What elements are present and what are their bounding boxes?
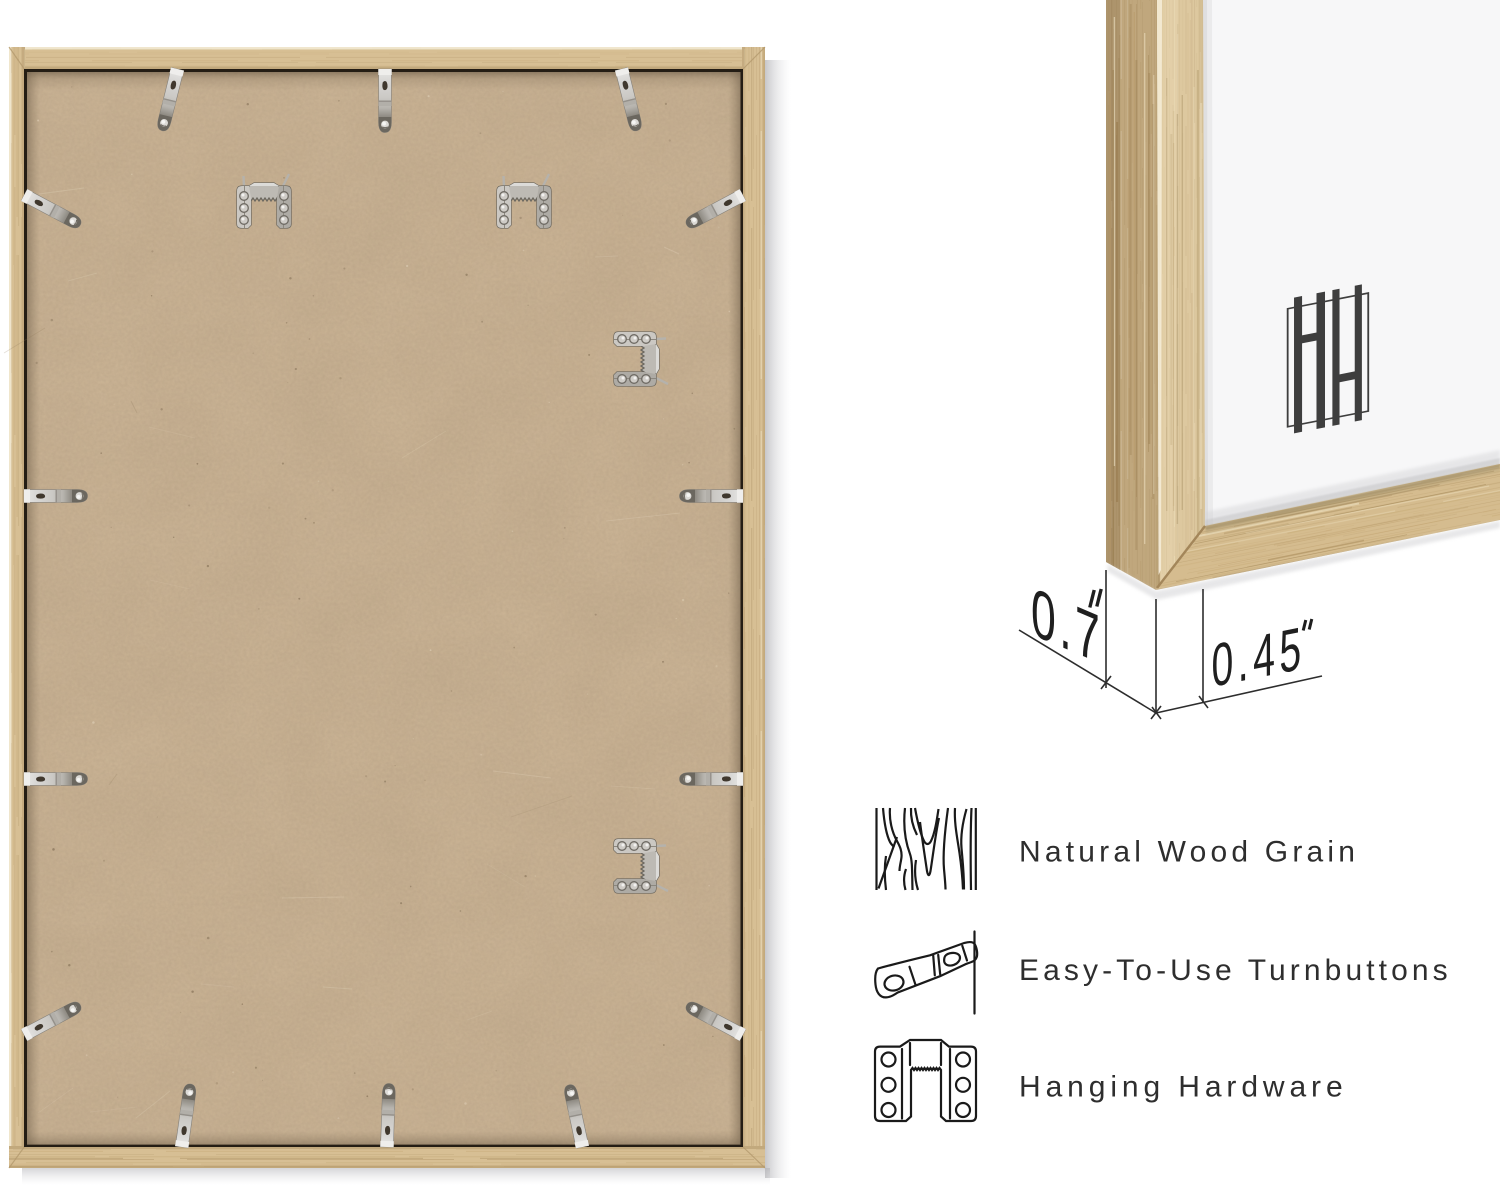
svg-text:Easy-To-Use Turnbuttons: Easy-To-Use Turnbuttons: [1019, 954, 1452, 987]
svg-text:Natural Wood Grain: Natural Wood Grain: [1019, 836, 1359, 869]
svg-text:Hanging Hardware: Hanging Hardware: [1019, 1071, 1348, 1104]
